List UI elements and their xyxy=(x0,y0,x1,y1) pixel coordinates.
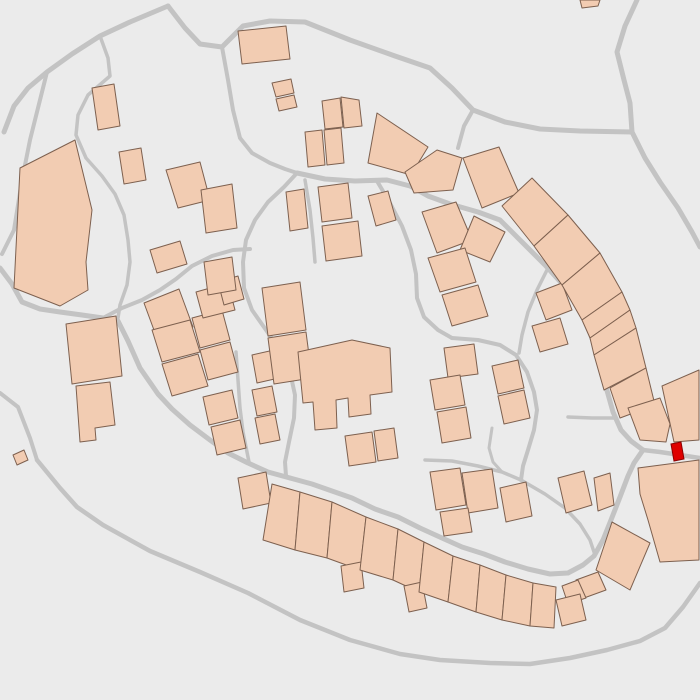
building-polygon xyxy=(272,79,294,97)
building-polygon xyxy=(430,375,465,410)
building-polygon xyxy=(295,492,332,558)
building-polygon xyxy=(252,386,277,416)
building-polygon xyxy=(14,140,92,306)
building-polygon xyxy=(556,594,586,626)
building-polygon xyxy=(255,414,280,444)
building-polygon xyxy=(324,128,344,165)
building-polygon xyxy=(428,248,476,292)
building-polygon xyxy=(66,316,122,384)
building-polygon xyxy=(444,344,478,378)
building-polygon xyxy=(492,360,524,394)
road-outer-top-left xyxy=(4,6,168,132)
building-polygon xyxy=(341,97,362,128)
building-polygon xyxy=(580,0,600,8)
building-polygon xyxy=(530,583,556,628)
building-polygon xyxy=(327,502,366,570)
building-polygon xyxy=(440,508,472,536)
building-polygon xyxy=(262,282,306,336)
building-polygon xyxy=(211,420,246,455)
building-polygon xyxy=(318,183,352,222)
building-polygon xyxy=(238,26,290,64)
marker-layer xyxy=(671,442,684,461)
building-polygon xyxy=(76,382,115,442)
building-polygon xyxy=(476,565,506,620)
building-polygon xyxy=(322,221,362,261)
road-east-stub xyxy=(568,417,614,418)
building-polygon xyxy=(442,285,488,326)
map-canvas[interactable] xyxy=(0,0,700,700)
building-polygon xyxy=(360,517,398,580)
road-outer-left-lower xyxy=(0,393,37,460)
building-polygon xyxy=(286,189,308,231)
building-polygon xyxy=(150,241,187,273)
building-polygon xyxy=(119,148,146,184)
building-polygon xyxy=(532,318,568,352)
building-polygon xyxy=(92,84,120,130)
building-polygon xyxy=(201,184,237,233)
road-top-stub xyxy=(458,110,473,148)
building-polygon xyxy=(448,556,480,612)
building-polygon xyxy=(203,390,238,425)
road-east-exit xyxy=(643,450,700,458)
building-polygon xyxy=(498,390,530,424)
building-polygon xyxy=(437,407,471,443)
road-outer-right xyxy=(617,0,700,247)
building-polygon xyxy=(305,130,325,167)
road-top-road xyxy=(168,6,632,132)
building-polygon xyxy=(345,432,376,466)
building-polygon xyxy=(368,191,396,226)
building-polygon xyxy=(430,468,466,510)
building-polygon xyxy=(462,469,498,513)
building-polygon xyxy=(298,340,392,430)
road-south-connector xyxy=(489,428,502,472)
building-polygon xyxy=(200,342,238,380)
building-polygon xyxy=(500,482,532,522)
building-polygon xyxy=(374,428,398,461)
building-polygon xyxy=(594,473,614,511)
building-polygon xyxy=(13,450,28,465)
building-polygon xyxy=(419,542,453,602)
building-polygon xyxy=(276,95,297,111)
building-polygon xyxy=(238,472,271,509)
building-polygon xyxy=(502,575,533,626)
map-viewport[interactable] xyxy=(0,0,700,700)
building-polygon xyxy=(204,257,236,295)
building-polygon xyxy=(322,98,343,129)
location-marker[interactable] xyxy=(671,442,684,461)
